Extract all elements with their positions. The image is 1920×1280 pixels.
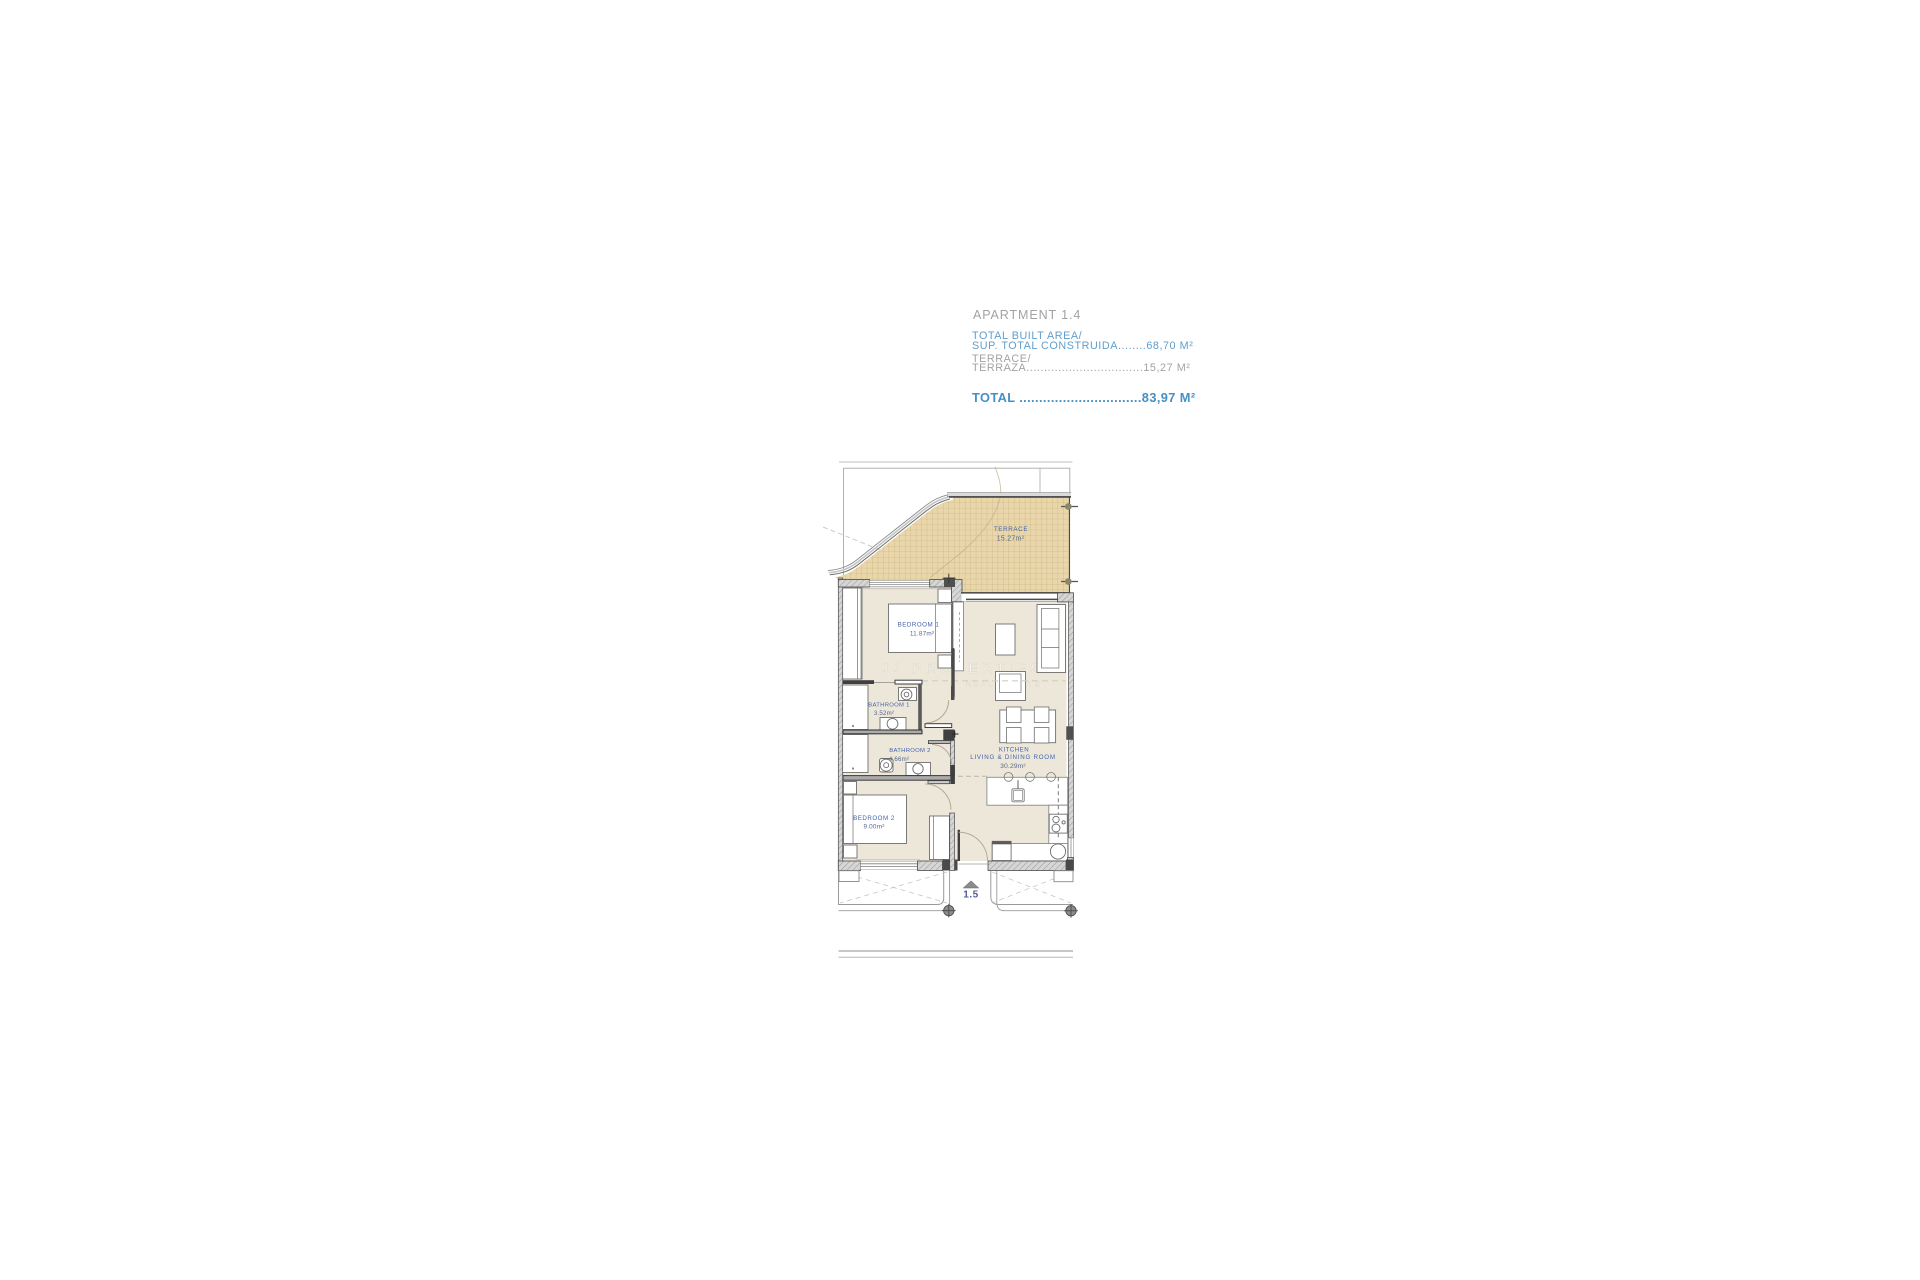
svg-text:BATHROOM 2: BATHROOM 2 xyxy=(889,748,931,754)
svg-text:BEDROOM 1: BEDROOM 1 xyxy=(898,622,940,629)
svg-text:9.00m²: 9.00m² xyxy=(863,824,884,831)
svg-text:3.52m²: 3.52m² xyxy=(874,710,894,717)
svg-text:1.5: 1.5 xyxy=(963,890,978,901)
svg-text:15.27m²: 15.27m² xyxy=(997,536,1025,543)
svg-text:KITCHEN: KITCHEN xyxy=(999,747,1029,754)
svg-text:LIVING & DINING ROOM: LIVING & DINING ROOM xyxy=(970,754,1055,761)
svg-text:11.87m²: 11.87m² xyxy=(910,631,934,638)
svg-text:4.66m²: 4.66m² xyxy=(889,756,909,763)
svg-text:30.29m²: 30.29m² xyxy=(1000,763,1026,770)
svg-text:BATHROOM 1: BATHROOM 1 xyxy=(868,703,910,709)
svg-text:BEDROOM 2: BEDROOM 2 xyxy=(853,815,895,822)
svg-text:TERRACE: TERRACE xyxy=(994,526,1028,533)
